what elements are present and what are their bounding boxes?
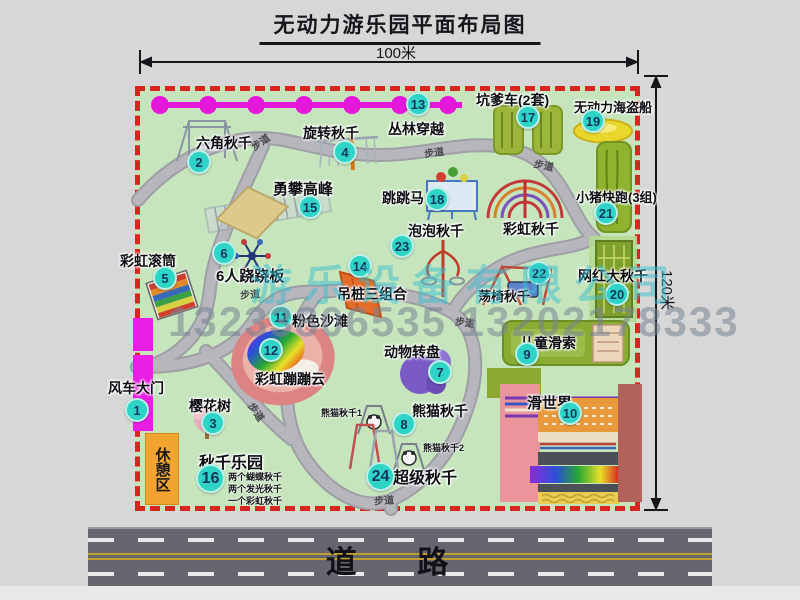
item-badge-16: 16: [196, 464, 225, 493]
panda-swing-1-label: 熊猫秋千1: [321, 406, 362, 419]
item-label-12: 彩虹蹦蹦云: [255, 369, 325, 389]
item-badge-20: 20: [605, 282, 629, 306]
item-label-14: 吊桩三组合: [337, 284, 407, 304]
item-label-11: 粉色沙滩: [292, 311, 348, 331]
item-badge-23: 23: [390, 234, 414, 258]
item-badge-1: 1: [125, 398, 149, 422]
item-badge-21: 21: [594, 201, 618, 225]
item-badge-11: 11: [269, 305, 293, 329]
item-badge-17: 17: [516, 105, 540, 129]
item-badge-15: 15: [298, 195, 322, 219]
swing-note-3: 一个彩虹秋千: [228, 494, 282, 507]
item-badge-4: 4: [333, 140, 357, 164]
item-label-18: 跳跳马: [382, 188, 424, 208]
item-badge-8: 8: [392, 412, 416, 436]
item-badge-13: 13: [406, 92, 430, 116]
page-title: 无动力游乐园平面布局图: [260, 8, 541, 45]
path-label-5: 步道: [454, 313, 476, 331]
path-label-2: 步道: [423, 143, 445, 161]
item-label-4: 旋转秋千: [303, 123, 359, 143]
item-badge-12: 12: [259, 338, 283, 362]
item-badge-3: 3: [201, 411, 225, 435]
item-label-13: 丛林穿越: [388, 119, 444, 139]
item-badge-7: 7: [428, 360, 452, 384]
item-label-17: 坑爹车(2套): [476, 90, 549, 110]
road: 道 路: [88, 527, 712, 588]
item-label-24: 超级秋千: [393, 464, 457, 488]
item-label-7: 动物转盘: [384, 342, 440, 362]
item-badge-2: 2: [187, 150, 211, 174]
height-dimension-label: 120米: [657, 270, 678, 310]
item-badge-9: 9: [515, 342, 539, 366]
rest-area-block: 休憩区: [145, 433, 179, 505]
item-label-22: 荡椅秋千: [478, 286, 530, 305]
item-badge-6: 6: [212, 241, 236, 265]
road-label: 道 路: [326, 537, 475, 582]
item-badge-19: 19: [581, 109, 605, 133]
panda-swing-2-label: 熊猫秋千2: [423, 441, 464, 454]
path-label-4: 步道: [240, 285, 261, 301]
item-label-6: 6人跷跷板: [216, 265, 284, 286]
item-label-8: 熊猫秋千: [412, 401, 468, 421]
item-badge-14: 14: [348, 254, 372, 278]
item-badge-10: 10: [558, 401, 582, 425]
width-dimension-label: 100米: [376, 42, 416, 63]
item-badge-18: 18: [425, 187, 449, 211]
item-label-21: 小猪快跑(3组): [576, 187, 657, 206]
item-label-1: 风车大门: [108, 378, 164, 398]
item-label-2: 六角秋千: [196, 133, 252, 153]
item-badge-22: 22: [527, 261, 551, 285]
park-plan-image: 无动力游乐园平面布局图: [0, 0, 800, 600]
bottom-strip: [0, 586, 800, 600]
path-label-6: 步道: [374, 491, 395, 507]
item-badge-5: 5: [153, 266, 177, 290]
item-badge-24: 24: [366, 462, 395, 491]
rainbow-swing-label: 彩虹秋千: [503, 219, 559, 239]
item-label-23: 泡泡秋千: [408, 221, 464, 241]
